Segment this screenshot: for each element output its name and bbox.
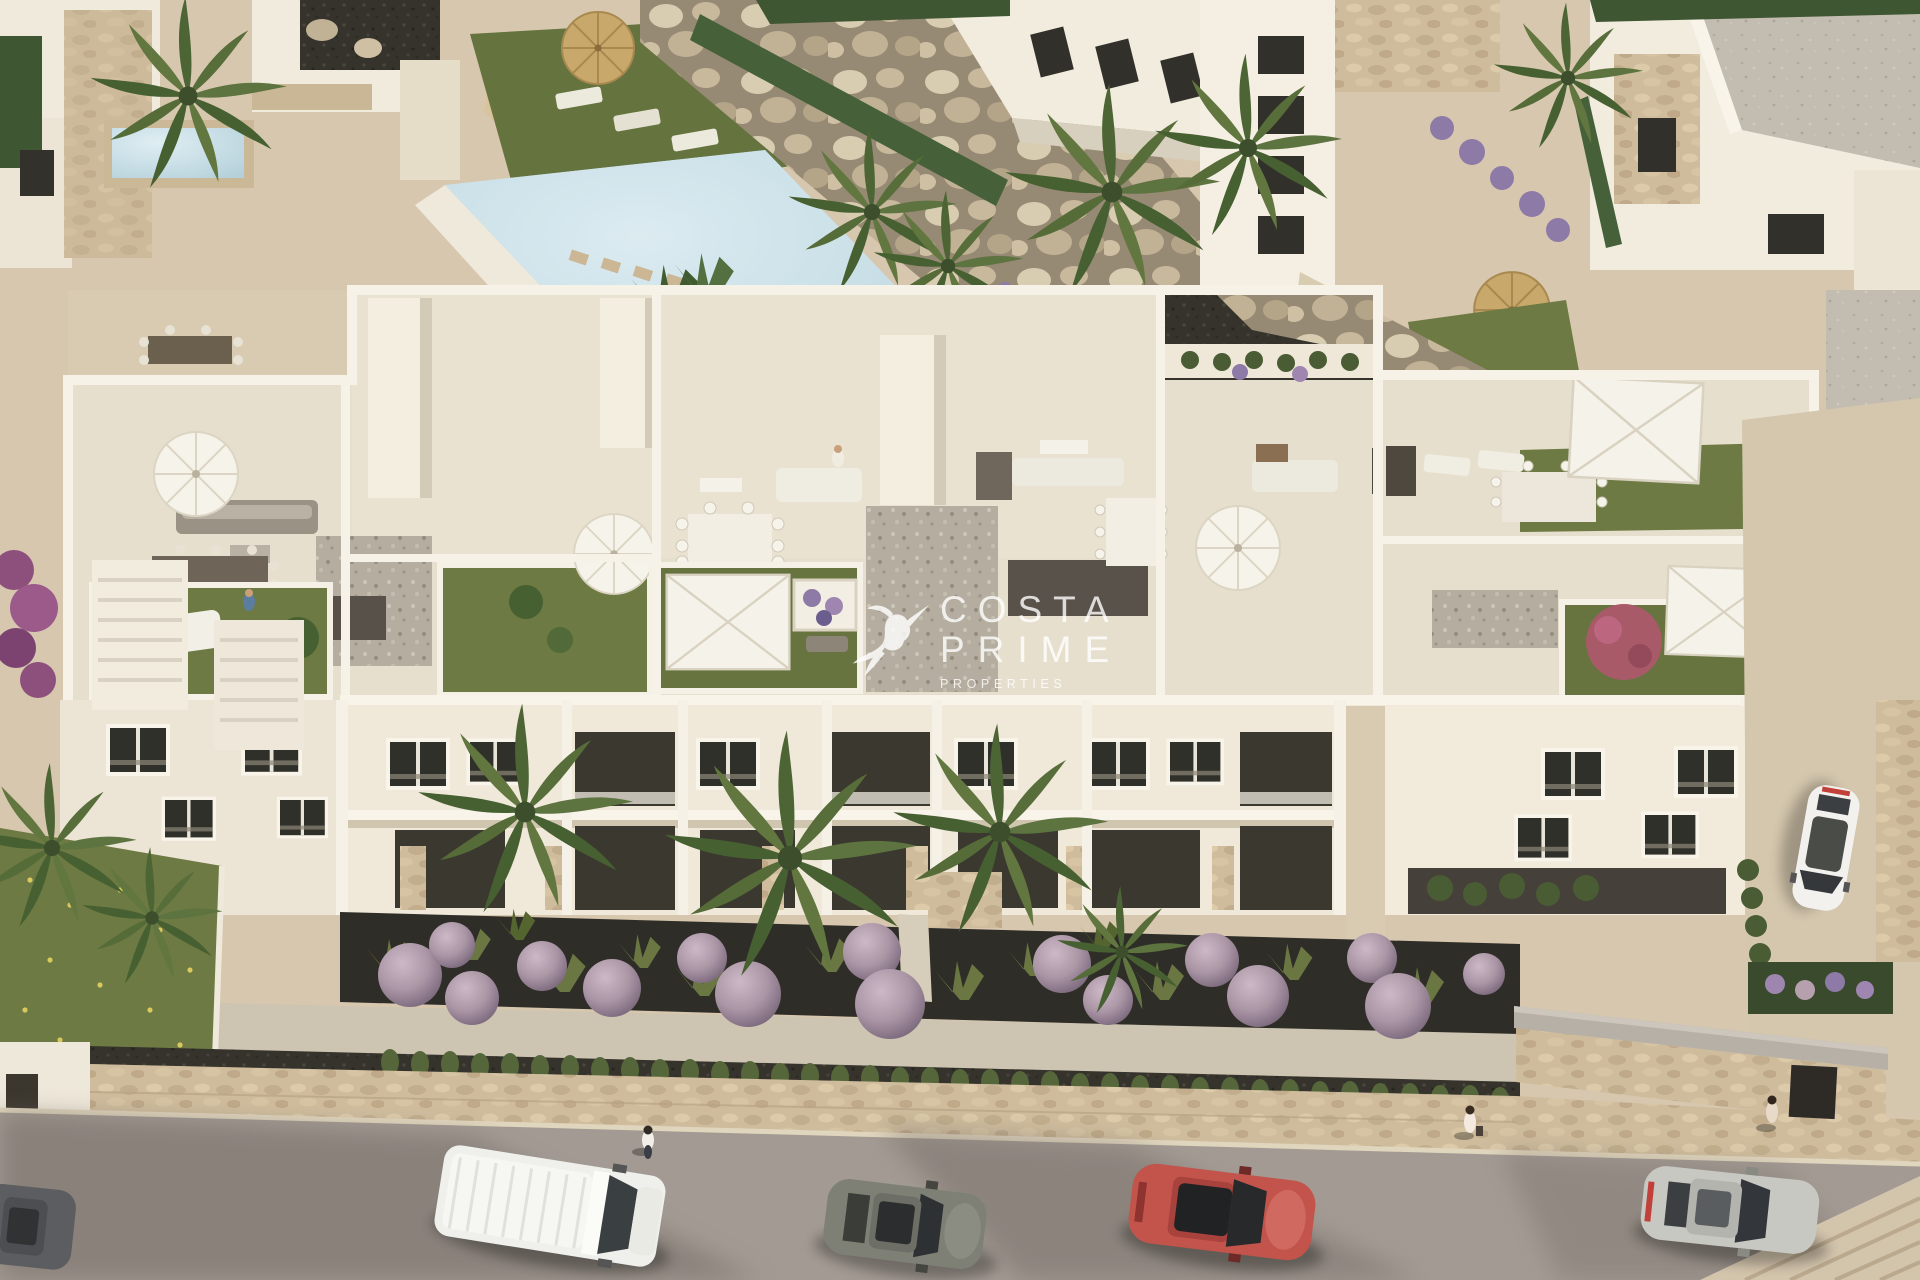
roof-box [1008,560,1148,616]
side-passage [1346,706,1385,966]
straw-parasol-1 [562,12,634,84]
aerial-render-canvas: COSTA PRIME PROPERTIES [0,0,1920,1280]
roof-planter-strip [1160,290,1378,382]
hedge-block [0,36,42,168]
right-driveway [1737,398,1920,1120]
roof-box [976,452,1012,500]
roof-lawn-b [652,565,860,691]
roof-box [332,596,386,640]
scene-illustration [0,0,1920,1280]
gravel-court-2 [866,506,998,692]
neighbour-patio [68,290,352,380]
driveway-flowerbed [1748,962,1893,1014]
dark-car-left-edge [0,1182,78,1271]
right-wing-facade [1385,706,1745,915]
